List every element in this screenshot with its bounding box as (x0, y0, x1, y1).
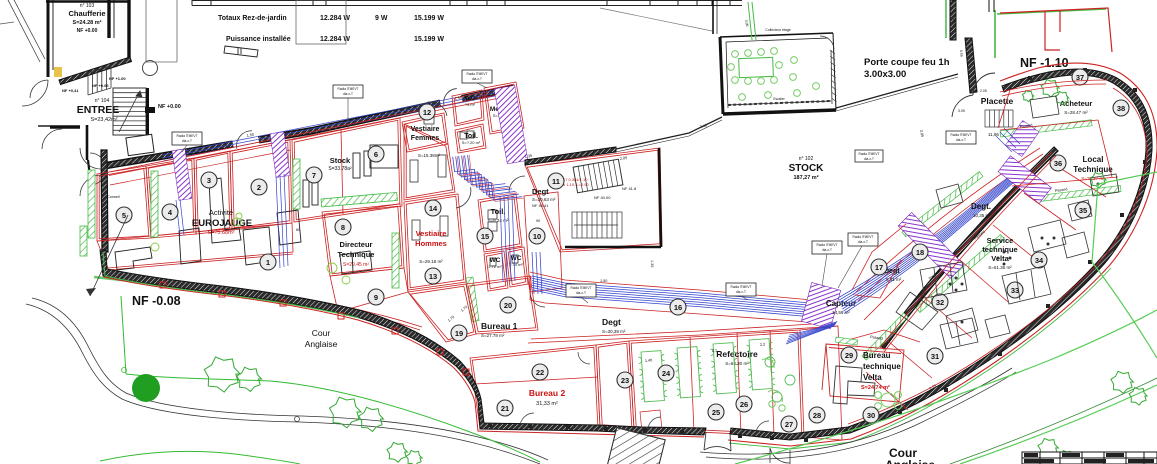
svg-text:Radia ITMEVT: Radia ITMEVT (338, 87, 359, 91)
svg-text:23: 23 (621, 376, 629, 385)
svg-text:11: 11 (552, 177, 560, 186)
svg-text:S=61.36 m²: S=61.36 m² (988, 265, 1012, 270)
svg-text:S=29.18 m²: S=29.18 m² (419, 259, 443, 264)
svg-text:Degt: Degt (602, 317, 621, 327)
svg-text:14: 14 (429, 204, 438, 213)
svg-text:Anglaise: Anglaise (885, 458, 935, 464)
svg-text:S=24.28 m²: S=24.28 m² (73, 19, 102, 26)
svg-text:NF +1.00: NF +1.00 (109, 76, 126, 81)
svg-text:S=23,42m²: S=23,42m² (90, 117, 117, 123)
svg-text:0.95: 0.95 (959, 50, 964, 57)
svg-text:NF -1.10: NF -1.10 (1020, 56, 1069, 70)
svg-text:3.05: 3.05 (952, 18, 957, 25)
svg-text:32: 32 (936, 298, 944, 307)
svg-text:Radia ITMEVT: Radia ITMEVT (731, 285, 752, 289)
svg-text:NF 40.41: NF 40.41 (532, 203, 549, 208)
svg-text:38: 38 (1117, 104, 1125, 113)
svg-text:NF +0.00: NF +0.00 (158, 104, 181, 110)
svg-text:28: 28 (813, 411, 821, 420)
svg-text:90: 90 (536, 219, 540, 223)
svg-text:NF +0.00: NF +0.00 (77, 28, 98, 34)
svg-text:S=24,74 m²: S=24,74 m² (861, 384, 890, 391)
svg-text:Radia ITMEVT: Radia ITMEVT (859, 152, 880, 156)
svg-text:Technique: Technique (1073, 165, 1113, 174)
svg-text:3: 3 (207, 176, 211, 185)
svg-text:3.00x3.00: 3.00x3.00 (864, 69, 906, 80)
svg-text:S=30,39 m²: S=30,39 m² (602, 329, 626, 334)
svg-text:3.05: 3.05 (958, 109, 965, 113)
svg-text:S=15.38m²: S=15.38m² (418, 153, 441, 158)
svg-text:10: 10 (533, 232, 541, 241)
svg-text:Cour: Cour (312, 328, 331, 338)
svg-text:S=29.45 m²: S=29.45 m² (343, 262, 369, 268)
svg-text:21: 21 (501, 404, 509, 413)
svg-text:15: 15 (481, 232, 489, 241)
svg-text:Puissance installée: Puissance installée (226, 36, 291, 43)
svg-text:technique: technique (863, 362, 901, 371)
svg-text:Bureau: Bureau (863, 351, 891, 360)
svg-text:22: 22 (536, 368, 544, 377)
svg-text:NF 40.00: NF 40.00 (594, 195, 611, 200)
svg-text:Chaufferie: Chaufferie (68, 9, 105, 18)
svg-text:17: 17 (875, 263, 883, 272)
svg-text:1.40: 1.40 (645, 358, 653, 363)
svg-text:?3 m²: ?3 m² (465, 102, 476, 107)
svg-text:dia-x-T: dia-x-T (182, 139, 192, 143)
svg-text:2.2: 2.2 (760, 343, 766, 347)
svg-text:Vestiaire: Vestiaire (416, 229, 447, 238)
svg-text:Toil.: Toil. (491, 207, 506, 216)
svg-text:15.199 W: 15.199 W (414, 36, 444, 43)
svg-text:25: 25 (712, 408, 720, 417)
svg-text:12: 12 (423, 108, 431, 117)
svg-text:Activité: Activité (209, 208, 233, 217)
svg-text:S=33.78a²: S=33.78a² (328, 166, 352, 172)
svg-text:13: 13 (429, 272, 437, 281)
svg-text:1.50: 1.50 (600, 279, 607, 283)
svg-text:Conseil: Conseil (107, 195, 120, 199)
svg-text:31,33 m²: 31,33 m² (536, 401, 558, 407)
svg-text:Collecteur étage: Collecteur étage (765, 28, 791, 32)
svg-text:S=?.20 m²: S=?.20 m² (462, 140, 481, 145)
svg-text:19: 19 (455, 329, 463, 338)
svg-text:2.1: 2.1 (712, 349, 718, 353)
svg-text:Velta: Velta (863, 373, 882, 382)
svg-text:36: 36 (1054, 159, 1062, 168)
svg-text:Velta: Velta (991, 254, 1009, 263)
svg-text:dia-x-T: dia-x-T (956, 138, 966, 142)
svg-text:WC: WC (490, 257, 501, 264)
svg-text:dia-x-T: dia-x-T (864, 157, 874, 161)
svg-text:Stock: Stock (330, 156, 351, 165)
svg-text:Radia ITMEVT: Radia ITMEVT (951, 133, 972, 137)
svg-text:9: 9 (374, 293, 378, 302)
svg-text:31: 31 (931, 352, 939, 361)
svg-text:34: 34 (1035, 256, 1044, 265)
svg-text:16: 16 (674, 303, 682, 312)
svg-text:dia-x-T: dia-x-T (822, 248, 832, 252)
svg-text:Acheteur: Acheteur (1060, 99, 1093, 108)
svg-text:Toil.: Toil. (464, 133, 478, 140)
svg-text:Degt.: Degt. (971, 202, 991, 211)
svg-text:dia-x-T: dia-x-T (858, 240, 868, 244)
svg-text:Placette: Placette (981, 96, 1014, 106)
svg-text:35: 35 (1079, 206, 1087, 215)
svg-text:dia-x-T: dia-x-T (736, 290, 746, 294)
svg-text:dia-x-T: dia-x-T (576, 291, 586, 295)
svg-text:Radia ITMEVT: Radia ITMEVT (467, 72, 488, 76)
svg-text:Bureau 2: Bureau 2 (529, 388, 566, 398)
svg-text:S=30,63 m²: S=30,63 m² (532, 197, 556, 202)
svg-text:Porte coupe feu 1h: Porte coupe feu 1h (864, 57, 950, 68)
svg-text:2.72 m²: 2.72 m² (488, 264, 502, 269)
svg-text:6: 6 (374, 150, 378, 159)
svg-text:29: 29 (845, 351, 853, 360)
svg-text:2.05: 2.05 (980, 89, 987, 93)
svg-text:NF -0.08: NF -0.08 (132, 294, 181, 308)
svg-text:S=64.30 m²: S=64.30 m² (725, 361, 749, 366)
svg-text:27: 27 (785, 420, 793, 429)
svg-text:18: 18 (916, 248, 924, 257)
svg-text:30: 30 (867, 411, 875, 420)
svg-text:NF 41.8: NF 41.8 (622, 186, 637, 191)
svg-text:Directeur: Directeur (340, 240, 373, 249)
svg-text:technique: technique (982, 245, 1017, 254)
svg-text:Vestiaire: Vestiaire (411, 126, 440, 133)
svg-text:Service: Service (987, 236, 1014, 245)
svg-text:9 W: 9 W (375, 15, 388, 22)
svg-text:1: 1 (266, 258, 270, 267)
svg-text:5: 5 (122, 211, 126, 220)
svg-text:Degt: Degt (532, 187, 549, 196)
svg-text:Femmes: Femmes (411, 135, 440, 142)
svg-text:WC: WC (511, 255, 522, 262)
svg-text:1.35: 1.35 (650, 260, 654, 267)
svg-text:S=9.24 m²: S=9.24 m² (488, 218, 509, 223)
svg-text:Anglaise: Anglaise (305, 339, 338, 349)
svg-text:Radia ITMEVT: Radia ITMEVT (177, 134, 198, 138)
svg-text:2.74 m²: 2.74 m² (509, 262, 523, 267)
svg-text:dia-x-T: dia-x-T (343, 92, 353, 96)
svg-text:EUROJAUGE: EUROJAUGE (192, 218, 252, 229)
svg-text:80: 80 (296, 228, 300, 232)
svg-text:8: 8 (341, 223, 345, 232)
svg-text:26: 26 (740, 400, 748, 409)
svg-text:Radia ITMEVT: Radia ITMEVT (853, 235, 874, 239)
svg-text:Totaux Rez-de-jardin: Totaux Rez-de-jardin (218, 15, 287, 22)
svg-text:NF +0,41: NF +0,41 (62, 88, 79, 93)
svg-text:10,35 m²: 10,35 m² (973, 213, 991, 218)
svg-text:S=27.78 m²: S=27.78 m² (481, 333, 505, 338)
svg-text:Bureau 1: Bureau 1 (481, 321, 518, 331)
svg-text:n° 102: n° 102 (799, 156, 814, 162)
svg-text:Escalier: Escalier (773, 97, 785, 101)
svg-text:Local: Local (1083, 155, 1104, 164)
svg-text:187,27 m²: 187,27 m² (793, 174, 818, 181)
svg-text:15.199 W: 15.199 W (414, 15, 444, 22)
svg-text:2: 2 (257, 183, 261, 192)
svg-text:Refectoire: Refectoire (716, 349, 758, 359)
svg-text:7: 7 (312, 171, 316, 180)
svg-text:Radia ITMEVT: Radia ITMEVT (817, 243, 838, 247)
svg-text:NF +0.06: NF +0.06 (92, 83, 109, 88)
svg-text:S=28.47 m²: S=28.47 m² (1064, 110, 1088, 115)
svg-text:Hommes: Hommes (415, 239, 447, 248)
svg-text:dia-x-T: dia-x-T (472, 77, 482, 81)
svg-text:Radia ITMEVT: Radia ITMEVT (571, 286, 592, 290)
svg-text:20: 20 (504, 301, 512, 310)
svg-text:WC: WC (465, 95, 476, 102)
svg-text:8,81 m²: 8,81 m² (886, 277, 902, 282)
svg-text:STOCK: STOCK (789, 163, 825, 174)
svg-text:24: 24 (662, 369, 671, 378)
